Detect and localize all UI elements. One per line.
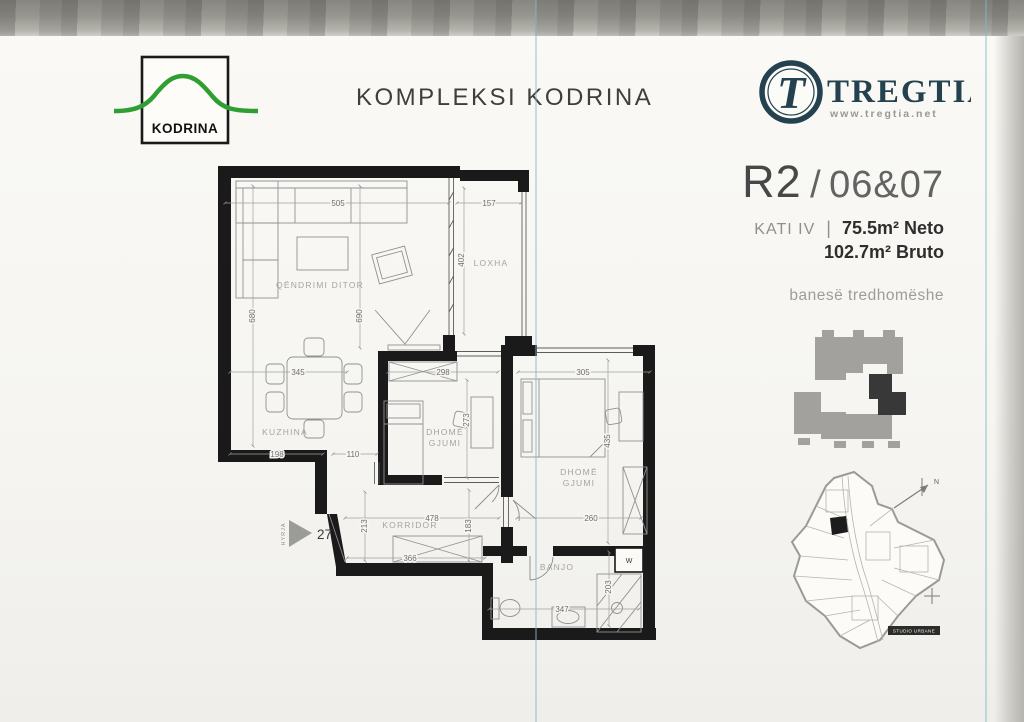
entry-number: 27 [317,527,332,542]
dim-label: 273 [462,413,471,427]
studio-label: STUDIO URBANE [893,629,935,634]
kodrina-logo-text: KODRINA [152,121,219,136]
dim-label: 305 [576,368,590,377]
dim-label: 260 [584,514,598,523]
tregtia-wordmark: TREGTIA [827,74,971,110]
dim-label: 366 [403,554,417,563]
toilet-bowl [500,600,520,617]
scan-artifact-top [0,0,1024,36]
room-labels: QËNDRIMI DITOR LOXHA KUZHINA DHOMË GJUMI… [262,258,598,572]
dim-label: 298 [436,368,450,377]
dim-label: 198 [270,450,284,459]
washer-box: W [615,548,643,572]
room-label-bedroom2-2: GJUMI [563,478,595,488]
coffee-table [297,237,348,270]
room-label-corridor: KORRIDOR [382,520,437,530]
unit-floor-area: KATI IV | 75.5m² Neto [644,218,944,239]
room-label-loxha: LOXHA [474,258,509,268]
unit-separator: / [806,164,825,206]
building-key-plan [792,330,932,452]
dining-table-chairs [266,338,362,438]
dimension-lines [225,186,650,626]
unit-numbers: 06&07 [829,164,944,206]
dim-label: 213 [360,519,369,533]
north-label: N [934,479,939,486]
dim-label: 435 [603,434,612,448]
room-label-bedroom2: DHOMË [560,467,598,477]
room-label-bedroom1: DHOMË [426,427,464,437]
scan-fold-line [535,0,537,722]
dim-label: 345 [291,368,305,377]
site-highlighted-plot [830,516,848,535]
dim-label: 402 [457,253,466,267]
unit-neto: 75.5m² Neto [842,218,944,238]
dim-label: 157 [482,199,496,208]
unit-block: R2 [742,156,802,207]
dim-label: 183 [464,519,473,533]
unit-floor: KATI IV [754,221,815,238]
dim-label: 203 [604,580,613,594]
bedroom1-furniture [384,362,493,484]
bathroom-fixtures [491,574,641,632]
dim-label: 680 [248,309,257,323]
unit-divider: | [820,218,837,238]
dim-label: 347 [555,605,569,614]
tv [372,246,413,284]
entry-arrow-icon [289,520,312,547]
floor-plan: W HYRJA 27 505 157 402 680 690 345 [205,148,665,653]
page-title: KOMPLEKSI KODRINA [356,84,653,112]
unit-info-panel: R2 / 06&07 KATI IV | 75.5m² Neto 102.7m²… [644,156,944,305]
tv-stand [375,310,440,350]
entry-label: HYRJA [281,522,287,545]
scan-artifact-right [994,36,1024,722]
room-label-bedroom1-2: GJUMI [429,438,461,448]
tregtia-url: www.tregtia.net [829,108,938,120]
room-label-bath: BANJO [540,562,574,572]
washer-label: W [626,558,633,565]
cross-marker-icon [924,588,940,604]
north-arrow-icon: N [894,478,939,508]
unit-type: banesë tredhomëshe [644,287,944,305]
entry-marker: HYRJA 27 [281,520,332,547]
bedroom2-furniture [521,379,647,534]
keyplan-highlighted-unit [869,374,906,415]
unit-code: R2 / 06&07 [644,156,944,208]
site-plan: N STUDIO URBANE [782,468,954,656]
scanned-floorplan-page: { "colors": { "logo_green": "#2f9e33", "… [0,0,1024,722]
kodrina-logo: KODRINA [112,48,277,150]
scan-fold-line-2 [985,0,987,722]
dim-label: 110 [347,450,360,459]
tregtia-monogram: T [777,67,807,118]
room-label-living: QËNDRIMI DITOR [276,280,364,290]
dim-label: 690 [355,309,364,323]
unit-bruto: 102.7m² Bruto [644,242,944,263]
dim-label: 505 [331,199,345,208]
tregtia-logo: T TREGTIA www.tregtia.net [756,52,971,138]
room-label-kitchen: KUZHINA [262,427,308,437]
